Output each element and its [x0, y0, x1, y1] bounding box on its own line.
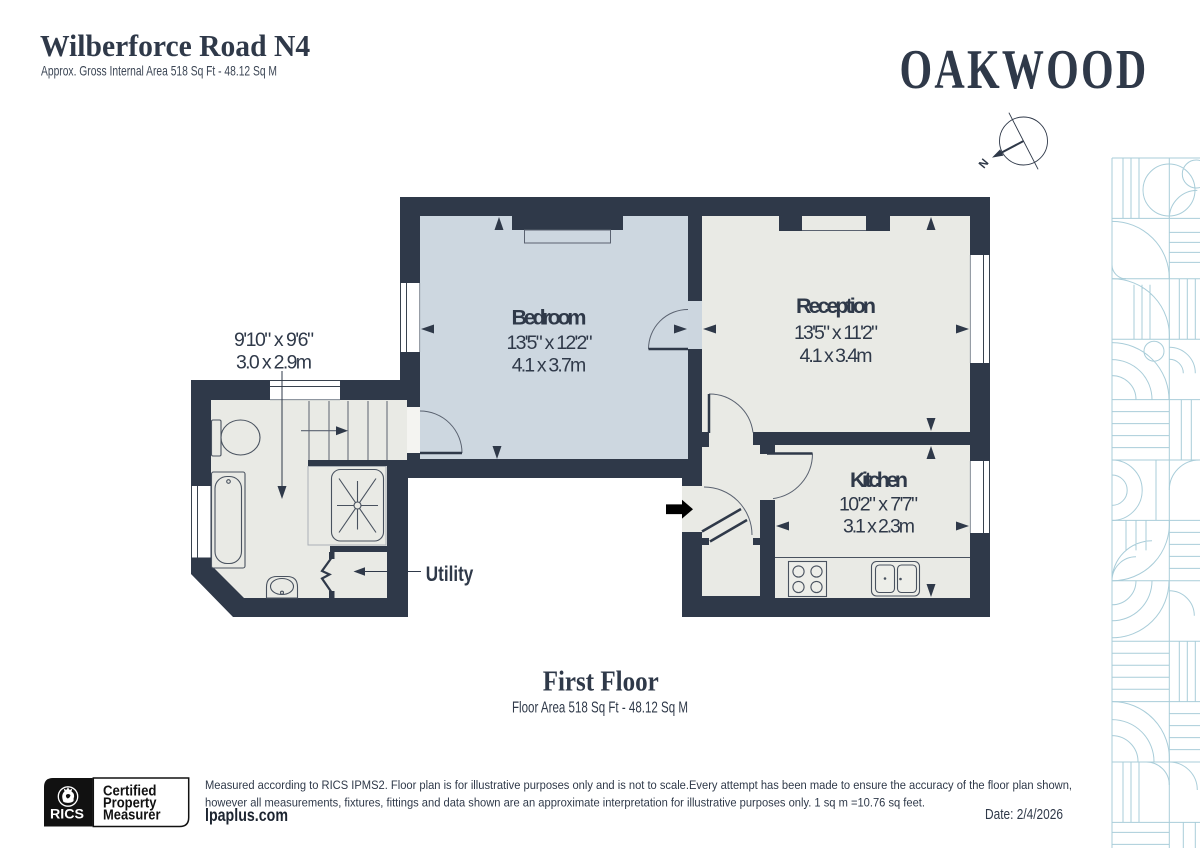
- svg-text:13'5" x 12'2": 13'5" x 12'2": [507, 332, 593, 354]
- svg-text:4.1 x 3.4m: 4.1 x 3.4m: [800, 345, 873, 367]
- svg-text:13'5" x 11'2": 13'5" x 11'2": [794, 322, 878, 344]
- svg-text:Reception: Reception: [796, 294, 876, 318]
- svg-text:Utility: Utility: [426, 562, 474, 586]
- svg-text:Measurer: Measurer: [103, 808, 161, 824]
- svg-text:3.0 x 2.9m: 3.0 x 2.9m: [236, 352, 312, 374]
- svg-text:3.1 x 2.3m: 3.1 x 2.3m: [843, 516, 915, 538]
- svg-text:Floor Area 518 Sq Ft - 48.12 S: Floor Area 518 Sq Ft - 48.12 Sq M: [512, 700, 688, 717]
- svg-text:Approx. Gross Internal Area 51: Approx. Gross Internal Area 518 Sq Ft - …: [41, 64, 277, 79]
- svg-text:Kitchen: Kitchen: [850, 468, 908, 492]
- svg-text:however all measurements, fixt: however all measurements, fixtures, fitt…: [205, 796, 925, 810]
- svg-text:10'2" x 7'7": 10'2" x 7'7": [839, 494, 918, 516]
- svg-text:First Floor: First Floor: [543, 667, 659, 698]
- svg-text:Bedroom: Bedroom: [512, 306, 587, 330]
- svg-text:OAKWOOD: OAKWOOD: [899, 38, 1148, 100]
- svg-text:9'10" x 9'6": 9'10" x 9'6": [234, 329, 314, 351]
- svg-text:Wilberforce Road N4: Wilberforce Road N4: [40, 28, 310, 63]
- svg-text:RICS: RICS: [50, 807, 84, 822]
- svg-text:Measured according to RICS IPM: Measured according to RICS IPMS2. Floor …: [205, 778, 1072, 792]
- svg-text:4.1 x 3.7m: 4.1 x 3.7m: [512, 355, 587, 377]
- svg-text:Date: 2/4/2026: Date: 2/4/2026: [985, 807, 1063, 823]
